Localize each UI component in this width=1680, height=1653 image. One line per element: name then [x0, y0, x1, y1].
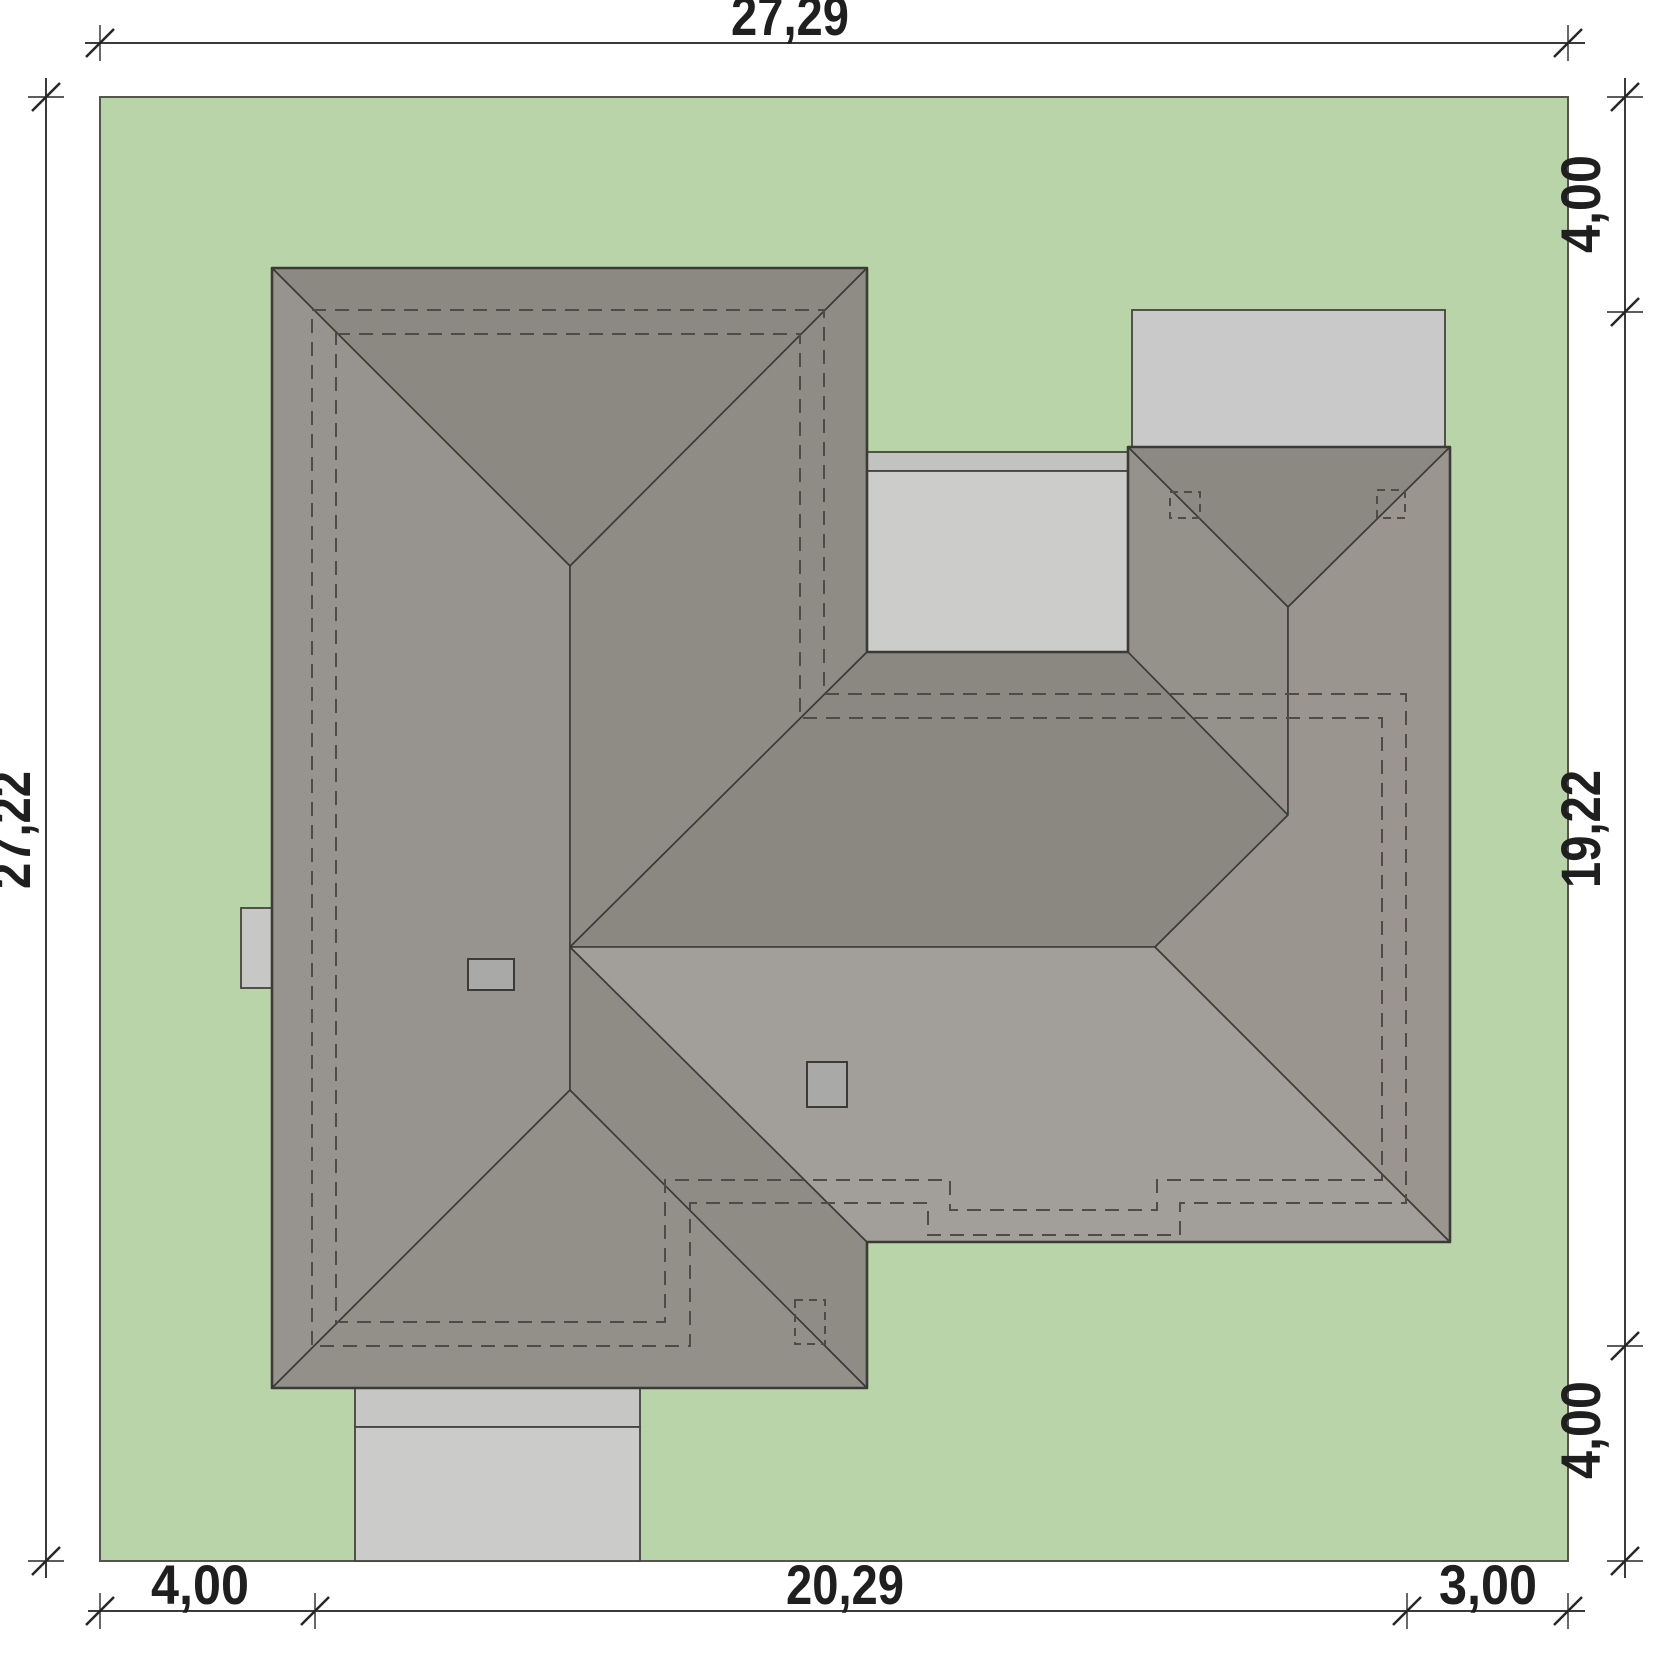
driveway: [355, 1427, 640, 1561]
site-plan-page: 27,29 27,22 4,00 19,22 4,00 4,00 20,29 3…: [0, 0, 1680, 1653]
dim-label-bottom-right: 3,00: [1439, 1553, 1537, 1616]
dim-label-bottom-middle: 20,29: [786, 1553, 904, 1616]
chimney-west: [468, 959, 514, 990]
driveway-step: [355, 1388, 640, 1427]
dim-label-top-width: 27,29: [731, 0, 849, 47]
west-porch-bump: [241, 908, 274, 988]
site-plan-drawing: 27,29 27,22 4,00 19,22 4,00 4,00 20,29 3…: [0, 0, 1680, 1653]
dim-label-right-middle: 19,22: [1549, 770, 1612, 888]
dim-label-bottom-left: 4,00: [151, 1553, 249, 1616]
dim-label-right-top: 4,00: [1549, 155, 1612, 253]
chimney-south: [807, 1062, 847, 1107]
terrace-top-right: [1132, 310, 1445, 447]
terrace-middle: [867, 471, 1128, 652]
dim-label-left-height: 27,22: [0, 771, 42, 889]
terrace-middle-step: [867, 452, 1128, 471]
dim-label-right-bottom: 4,00: [1549, 1381, 1612, 1479]
